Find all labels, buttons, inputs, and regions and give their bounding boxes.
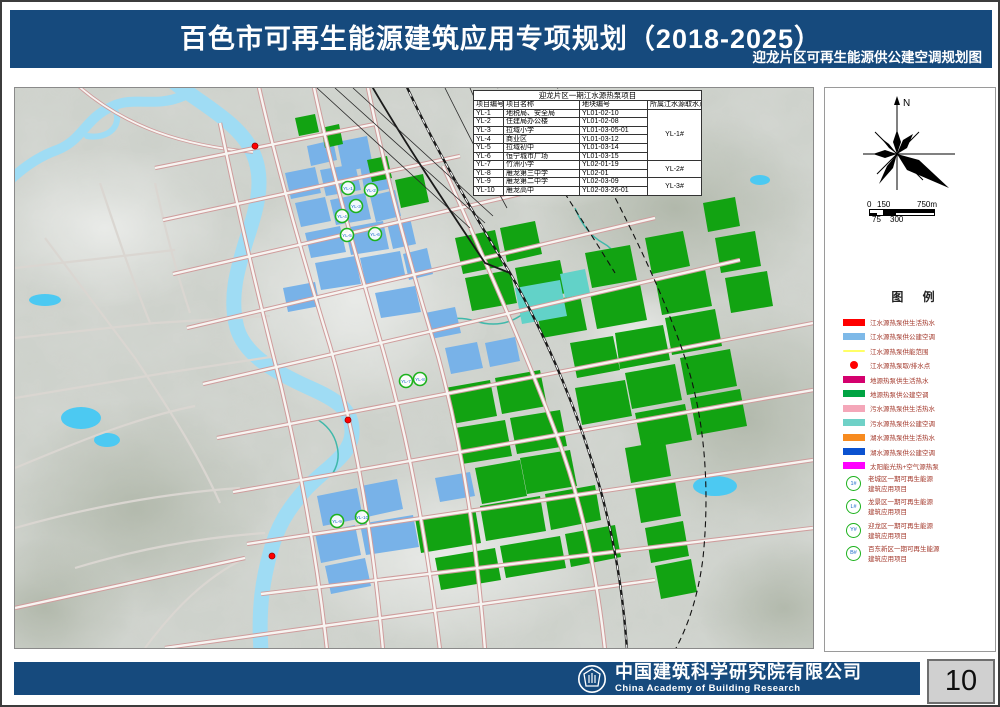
svg-text:YL-3: YL-3 [351,204,361,209]
table-cell: YL01-03-05-01 [580,126,648,135]
page-subtitle: 迎龙片区可再生能源供公建空调规划图 [753,46,983,66]
legend-project-item: Y#迎龙区一期可再生能源建筑应用项目 [843,522,983,542]
table-cell: 地税局、安全局 [504,109,580,118]
legend-item-label: 污水源热泵供生活热水 [870,403,935,413]
legend-title: 图 例 [843,288,983,305]
table-cell: 拉域初中 [504,143,580,152]
project-badge-icon: L# [846,499,861,514]
legend-swatch-bar [843,434,865,441]
table-cell: YL01-03-14 [580,143,648,152]
svg-text:YL-7: YL-7 [401,379,411,384]
project-marker: YL-9 [331,515,344,528]
table-cell: 雁龙第三中学 [504,169,580,178]
table-cell: YL01-02-08 [580,118,648,127]
table-cell: YL02-01-19 [580,161,648,170]
project-marker: YL-7 [400,375,413,388]
map-region: YL-1YL-2YL-3YL-4YL-5YL-6YL-7YL-8YL-9YL-1… [14,87,814,649]
legend-item: 污水源热泵供生活热水 [843,403,983,413]
water-intake-point [345,417,351,423]
table-cell: YL-2 [474,118,504,127]
footer-brand: 中国建筑科学研究院有限公司 China Academy of Building … [577,662,862,695]
table-cell: 商业区 [504,135,580,144]
table-cell: YL-6 [474,152,504,161]
project-badge-icon: 1# [846,476,861,491]
page-number-box: 10 [927,659,995,704]
compass-star [873,130,949,188]
legend-item: 江水源热泵取/排水点 [843,360,983,370]
legend-project-item: B#百东新区一期可再生能源建筑应用项目 [843,545,983,565]
water-intake-point [252,143,258,149]
table-cell: 拉域小学 [504,126,580,135]
table-cell: YL-3 [474,126,504,135]
legend-item-label: 江水源热泵供公建空调 [870,331,935,341]
legend-swatch-bar [843,333,865,340]
north-label: N [903,98,910,109]
header-band: 百色市可再生能源建筑应用专项规划（2018-2025） 迎龙片区可再生能源供公建… [10,10,992,68]
project-marker: YL-6 [369,228,382,241]
table-cell: YL-4 [474,135,504,144]
legend-item: 污水源热泵供公建空调 [843,418,983,428]
table-cell: 竹洲小学 [504,161,580,170]
table-column-header: 所属江水源取水点 [648,101,702,110]
legend-swatch-bar [843,462,865,469]
intake-point-cell: YL-3# [648,178,702,195]
project-marker: YL-5 [341,229,354,242]
legend-item: 江水源热泵供能范围 [843,346,983,356]
table-row: YL-1地税局、安全局YL01-02-10YL-1# [474,109,702,118]
legend-swatch-bar [843,390,865,397]
legend-project-item: L#龙景区一期可再生能源建筑应用项目 [843,498,983,518]
svg-text:YL-10: YL-10 [356,515,369,520]
project-badge-icon: B# [846,546,861,561]
legend-swatch-bar [843,419,865,426]
svg-text:YL-9: YL-9 [332,519,342,524]
table-column-header: 地块编号 [580,101,648,110]
legend-swatch-bar [843,319,865,326]
svg-text:YL-5: YL-5 [342,233,352,238]
table-cell: 住建局办公楼 [504,118,580,127]
legend-swatch-line [843,350,865,353]
project-table: 迎龙片区一期江水源热泵项目项目编号项目名称地块编号所属江水源取水点YL-1地税局… [473,90,702,196]
svg-text:YL-4: YL-4 [337,214,347,219]
table-title: 迎龙片区一期江水源热泵项目 [474,91,702,101]
project-marker: YL-1 [342,182,355,195]
legend-item-label: 江水源热泵供生活热水 [870,317,935,327]
company-logo-icon [577,664,607,694]
project-marker: YL-8 [414,373,427,386]
legend-item: 湖水源热泵供生活热水 [843,432,983,442]
legend-project-item: 1#老城区一期可再生能源建筑应用项目 [843,475,983,495]
footer-band: 中国建筑科学研究院有限公司 China Academy of Building … [14,662,920,695]
legend-item-label: 江水源热泵取/排水点 [870,360,930,370]
legend-swatch-bar [843,448,865,455]
legend-item-label: 江水源热泵供能范围 [870,346,929,356]
table-row: YL-7竹洲小学YL02-01-19YL-2# [474,161,702,170]
scale-label: 75 [872,215,881,224]
svg-text:YL-1: YL-1 [343,186,353,191]
table-row: YL-9雁龙第二中学YL02-03-09YL-3# [474,178,702,187]
legend-project-label: 百东新区一期可再生能源建筑应用项目 [868,545,940,565]
legend-swatch-dot [850,361,858,369]
water-intake-point [269,553,275,559]
table-cell: 雁龙高中 [504,186,580,195]
svg-text:YL-8: YL-8 [415,377,425,382]
company-name-en: China Academy of Building Research [615,683,862,694]
legend-item: 地源热泵供生活热水 [843,375,983,385]
intake-point-cell: YL-2# [648,161,702,178]
legend: 图 例 江水源热泵供生活热水江水源热泵供公建空调江水源热泵供能范围江水源热泵取/… [843,288,983,568]
legend-project-label: 龙景区一期可再生能源建筑应用项目 [868,498,933,518]
table-cell: YL-1 [474,109,504,118]
intake-point-cell: YL-1# [648,109,702,161]
table-cell: YL01-03-12 [580,135,648,144]
table-cell: YL02-03-09 [580,178,648,187]
scale-label: 750m [917,200,937,209]
page-number: 10 [945,665,977,698]
legend-item: 太阳能光热+空气源热泵 [843,461,983,471]
legend-item: 江水源热泵供公建空调 [843,331,983,341]
legend-item: 湖水源热泵供公建空调 [843,447,983,457]
table-cell: YL02-01 [580,169,648,178]
svg-text:YL-6: YL-6 [370,232,380,237]
legend-project-label: 老城区一期可再生能源建筑应用项目 [868,475,933,495]
scale-label: 0 [867,200,871,209]
table-cell: YL01-02-10 [580,109,648,118]
table-cell: YL-7 [474,161,504,170]
legend-item-label: 地源热泵供公建空调 [870,389,929,399]
project-marker: YL-3 [350,200,363,213]
legend-swatch-bar [843,405,865,412]
plan-sheet-page: 百色市可再生能源建筑应用专项规划（2018-2025） 迎龙片区可再生能源供公建… [0,0,1000,707]
svg-text:YL-2: YL-2 [366,188,376,193]
table-cell: 雁龙第二中学 [504,178,580,187]
legend-item-label: 湖水源热泵供公建空调 [870,447,935,457]
table-cell: 恒宁城市广场 [504,152,580,161]
table-cell: YL-5 [474,143,504,152]
legend-swatch-bar [843,376,865,383]
table-column-header: 项目编号 [474,101,504,110]
project-marker: YL-4 [336,210,349,223]
project-badge-icon: Y# [846,523,861,538]
table-cell: YL-8 [474,169,504,178]
scale-bar: 0 150 750m 75 300 [869,200,941,226]
legend-project-label: 迎龙区一期可再生能源建筑应用项目 [868,522,933,542]
table-cell: YL-9 [474,178,504,187]
north-arrow-compass: N [845,92,975,200]
project-marker: YL-10 [356,511,369,524]
project-marker: YL-2 [365,184,378,197]
table-cell: YL-10 [474,186,504,195]
table-column-header: 项目名称 [504,101,580,110]
company-name-cn: 中国建筑科学研究院有限公司 [615,664,862,682]
legend-item: 地源热泵供公建空调 [843,389,983,399]
legend-item-label: 湖水源热泵供生活热水 [870,432,935,442]
side-panel: N 0 150 750m 75 300 图 例 江水源热泵供生活热水江水 [824,87,996,652]
table-cell: YL02-03-26-01 [580,186,648,195]
legend-project-items: 1#老城区一期可再生能源建筑应用项目L#龙景区一期可再生能源建筑应用项目Y#迎龙… [843,475,983,565]
scale-label: 300 [890,215,903,224]
legend-item-label: 太阳能光热+空气源热泵 [870,461,939,471]
scale-label: 150 [877,200,890,209]
legend-items: 江水源热泵供生活热水江水源热泵供公建空调江水源热泵供能范围江水源热泵取/排水点地… [843,317,983,471]
legend-item: 江水源热泵供生活热水 [843,317,983,327]
legend-item-label: 地源热泵供生活热水 [870,375,929,385]
table-cell: YL01-03-15 [580,152,648,161]
legend-item-label: 污水源热泵供公建空调 [870,418,935,428]
